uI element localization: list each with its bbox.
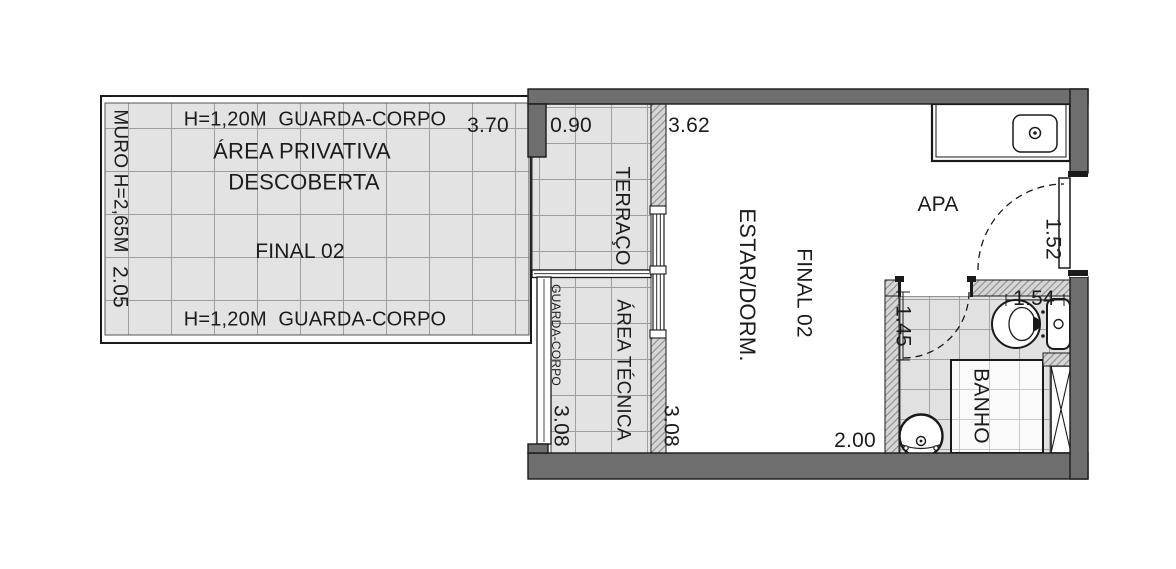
living-unit-label: FINAL 02 <box>794 248 815 338</box>
dim-entry-door: 1.52 <box>1043 218 1064 260</box>
bathroom-name: BANHO <box>971 368 992 444</box>
muro-wall-label: MURO H=2,65M <box>111 109 130 252</box>
dim-bathroom-width: 1.54 <box>1013 288 1055 310</box>
window <box>650 206 666 338</box>
dim-living-height: 3.08 <box>661 405 682 447</box>
floor-plan: MURO H=2,65M 2.05 H=1,20M GUARDA-CORPO Á… <box>0 0 1176 569</box>
entry-door <box>978 171 1088 277</box>
railing-end-post <box>528 444 548 453</box>
technical-area-name: ÁREA TÉCNICA <box>614 299 633 440</box>
dim-private-width: 3.70 <box>467 115 509 137</box>
dim-bath-wall: 2.00 <box>834 430 876 452</box>
railing-top-label: H=1,20M GUARDA-CORPO <box>184 110 447 131</box>
floor-plan-drawing <box>0 0 1176 569</box>
kitchen-sink-fixture <box>1013 115 1057 152</box>
living-name: ESTAR/DORM. <box>736 208 758 361</box>
dim-living-width: 3.62 <box>668 115 710 137</box>
dim-bathroom-door: 1.45 <box>893 305 914 347</box>
private-area-name-line2: DESCOBERTA <box>228 170 380 193</box>
dim-private-height: 2.05 <box>110 266 131 308</box>
kitchen-label: APA <box>917 194 958 216</box>
top-wall <box>528 89 1088 104</box>
terrace-name: TERRAÇO <box>612 166 632 265</box>
washbasin-fixture <box>900 415 943 458</box>
dim-technical-height: 3.08 <box>551 405 572 447</box>
kitchen-counter <box>932 104 1070 161</box>
railing-bottom-label: H=1,20M GUARDA-CORPO <box>184 310 447 331</box>
shower-door-panel <box>1051 366 1071 453</box>
right-wall-lower <box>1070 277 1088 479</box>
guarda-corpo-label: GUARDA-CORPO <box>550 284 562 386</box>
shower-box <box>951 360 1043 453</box>
bottom-wall <box>528 453 1088 479</box>
dim-terrace-width: 0.90 <box>550 115 592 137</box>
terrace-wall-stub <box>528 104 546 157</box>
right-wall-upper <box>1070 89 1088 173</box>
private-area-name-line1: ÁREA PRIVATIVA <box>213 139 391 162</box>
private-area-unit-label: FINAL 02 <box>255 241 345 263</box>
